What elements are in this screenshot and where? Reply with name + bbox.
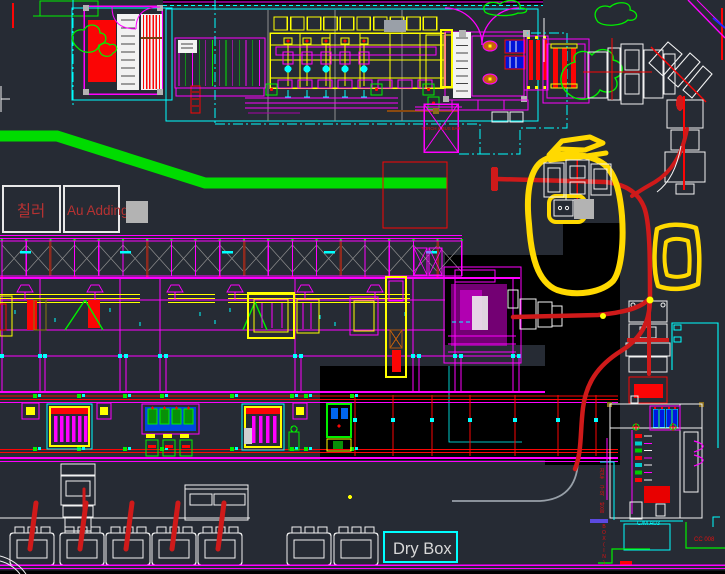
chiller-label: 칠러 (17, 202, 46, 220)
dry-box-label: Dry Box (393, 540, 452, 558)
box-in-text: BOX(IN) (601, 524, 607, 566)
torch-bus-label: TORCH & BUS BAR (421, 126, 460, 131)
zone-note-text: 저류 구의 방음 (598, 467, 605, 513)
cad-viewport[interactable]: TORCH & BUS BAR 칠러 Au Adding (0, 0, 725, 574)
cad-drawing: TORCH & BUS BAR 칠러 Au Adding (0, 0, 725, 574)
gray-block (574, 199, 594, 219)
circuit-code-text: CC 008 (694, 537, 715, 543)
route-node-dot (647, 297, 654, 304)
unit-code-text: C/M A03 (637, 521, 661, 527)
au-adding-label: Au Adding (67, 203, 129, 218)
gray-block (126, 201, 148, 223)
route-node-dot (600, 313, 606, 319)
